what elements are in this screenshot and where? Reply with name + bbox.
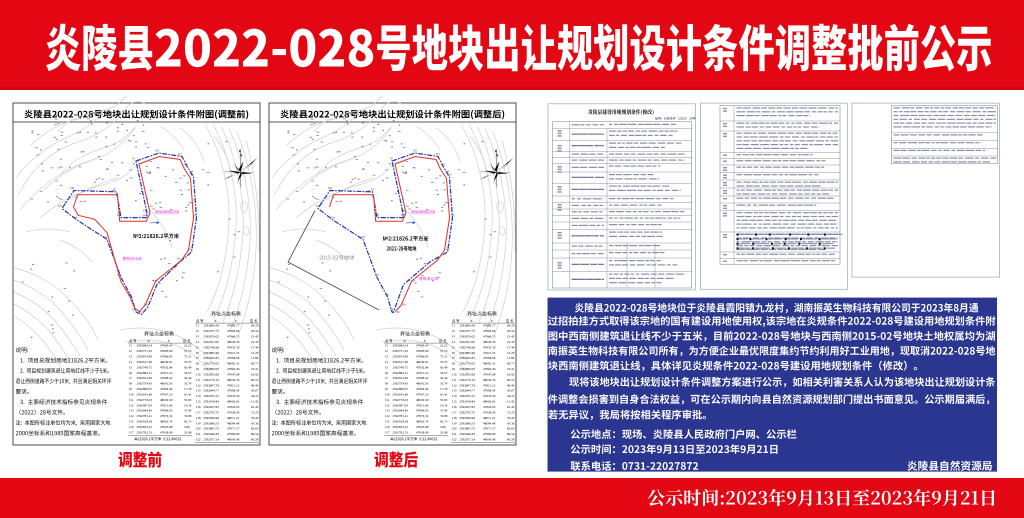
svg-text:J27: J27 <box>113 188 117 191</box>
svg-text:J23: J23 <box>361 236 365 239</box>
svg-text:J20: J20 <box>390 309 394 312</box>
svg-text:J12: J12 <box>442 164 446 167</box>
svg-text:J22: J22 <box>375 274 379 277</box>
svg-text:J27: J27 <box>371 188 375 191</box>
svg-text:J25: J25 <box>58 205 62 208</box>
svg-text:J13: J13 <box>448 174 452 177</box>
svg-text:J21: J21 <box>386 294 390 297</box>
svg-text:J19: J19 <box>138 311 142 314</box>
svg-text:J20: J20 <box>132 309 136 312</box>
svg-text:J10: J10 <box>413 150 417 153</box>
svg-text:J15: J15 <box>188 249 192 252</box>
svg-text:J11: J11 <box>436 153 440 156</box>
svg-text:J30: J30 <box>143 210 147 213</box>
svg-text:J15: J15 <box>446 249 450 252</box>
svg-text:J24: J24 <box>73 217 77 220</box>
svg-text:J17: J17 <box>411 280 415 283</box>
svg-text:J12: J12 <box>184 164 188 167</box>
svg-text:J13: J13 <box>190 174 194 177</box>
svg-text:J24: J24 <box>331 217 335 220</box>
svg-text:J28: J28 <box>375 214 379 217</box>
svg-text:J26: J26 <box>70 187 74 190</box>
svg-text:J28: J28 <box>117 214 121 217</box>
svg-text:J19: J19 <box>396 311 400 314</box>
svg-text:J29: J29 <box>401 214 405 217</box>
svg-text:J18: J18 <box>402 304 406 307</box>
svg-text:J26: J26 <box>328 187 332 190</box>
svg-text:J29: J29 <box>143 214 147 217</box>
svg-text:J23: J23 <box>103 236 107 239</box>
svg-text:J16: J16 <box>435 258 439 261</box>
svg-text:J17: J17 <box>153 280 157 283</box>
svg-text:J11: J11 <box>178 153 182 156</box>
svg-text:J18: J18 <box>144 304 148 307</box>
svg-text:J21: J21 <box>128 294 132 297</box>
svg-text:J22: J22 <box>117 274 121 277</box>
svg-text:J16: J16 <box>177 258 181 261</box>
svg-text:J30: J30 <box>401 210 405 213</box>
svg-text:J25: J25 <box>316 205 320 208</box>
svg-text:J14: J14 <box>193 215 197 218</box>
svg-text:J14: J14 <box>451 215 455 218</box>
svg-text:J10: J10 <box>155 150 159 153</box>
